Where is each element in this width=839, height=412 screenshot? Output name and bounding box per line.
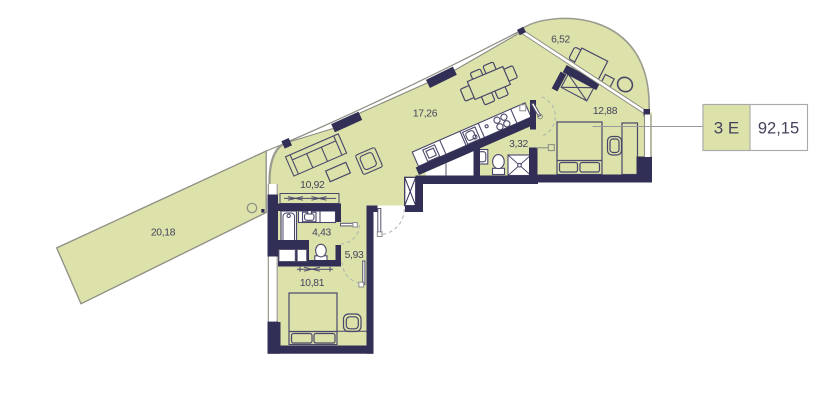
svg-text:12,88: 12,88 — [593, 106, 618, 117]
svg-text:10,92: 10,92 — [300, 180, 325, 191]
svg-text:6,52: 6,52 — [551, 35, 570, 46]
svg-text:3 Е: 3 Е — [714, 119, 740, 138]
svg-text:3,32: 3,32 — [509, 139, 528, 150]
svg-text:10,81: 10,81 — [300, 278, 325, 289]
svg-text:92,15: 92,15 — [758, 120, 799, 138]
svg-text:20,18: 20,18 — [151, 228, 176, 239]
svg-text:4,43: 4,43 — [312, 227, 331, 238]
svg-text:17,26: 17,26 — [413, 109, 438, 120]
svg-text:5,93: 5,93 — [345, 250, 364, 261]
